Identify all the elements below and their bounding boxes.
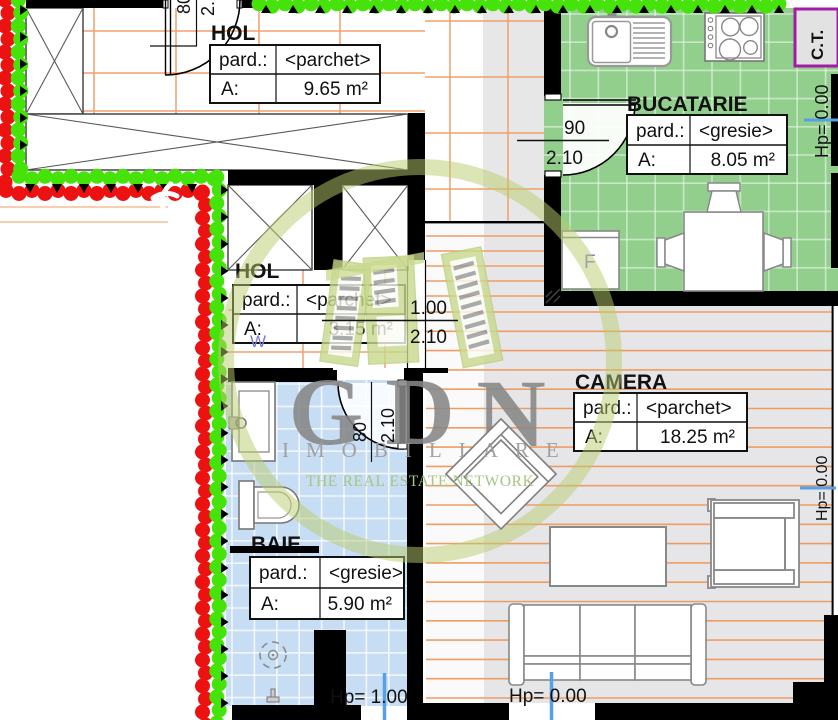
svg-text:W: W (250, 332, 266, 351)
svg-text:pard.:: pard.: (259, 563, 308, 584)
svg-text:5.90 m²: 5.90 m² (328, 594, 392, 615)
svg-text:<gresie>: <gresie> (699, 121, 773, 142)
svg-text:<gresie>: <gresie> (329, 563, 403, 584)
svg-text:Hp= 0.00: Hp= 0.00 (509, 686, 587, 707)
svg-text:C.T.: C.T. (808, 30, 827, 60)
svg-text:18.25 m²: 18.25 m² (660, 427, 735, 448)
svg-text:IMOBILIARE: IMOBILIARE (282, 438, 576, 462)
svg-text:THE REAL ESTATE NETWORK: THE REAL ESTATE NETWORK (306, 473, 534, 490)
svg-text:HOL: HOL (211, 22, 256, 45)
svg-text:2.10: 2.10 (378, 408, 398, 443)
svg-text:pard.:: pard.: (636, 121, 685, 142)
svg-text:pard.:: pard.: (242, 290, 291, 311)
svg-text:9.65 m²: 9.65 m² (304, 79, 368, 100)
svg-text:2.10: 2.10 (198, 0, 218, 16)
svg-text:80: 80 (350, 422, 370, 442)
svg-text:80: 80 (174, 0, 194, 14)
svg-text:2.10: 2.10 (410, 327, 447, 348)
svg-text:90: 90 (564, 118, 585, 139)
svg-text:2.10: 2.10 (546, 148, 583, 169)
svg-text:A:: A: (261, 594, 279, 615)
svg-text:Hp= 0.00: Hp= 0.00 (812, 84, 832, 158)
svg-text:<parchet>: <parchet> (646, 398, 732, 419)
svg-text:Hp= 1.00: Hp= 1.00 (330, 687, 408, 708)
svg-text:BUCATARIE: BUCATARIE (627, 93, 748, 116)
svg-text:pard.:: pard.: (219, 50, 268, 71)
svg-text:A:: A: (638, 150, 656, 171)
svg-text:1.00: 1.00 (410, 298, 447, 319)
svg-text:Hp= 0.00: Hp= 0.00 (814, 456, 831, 521)
svg-text:8.05 m²: 8.05 m² (711, 150, 775, 171)
svg-text:A:: A: (221, 79, 239, 100)
svg-text:<parchet>: <parchet> (285, 50, 371, 71)
